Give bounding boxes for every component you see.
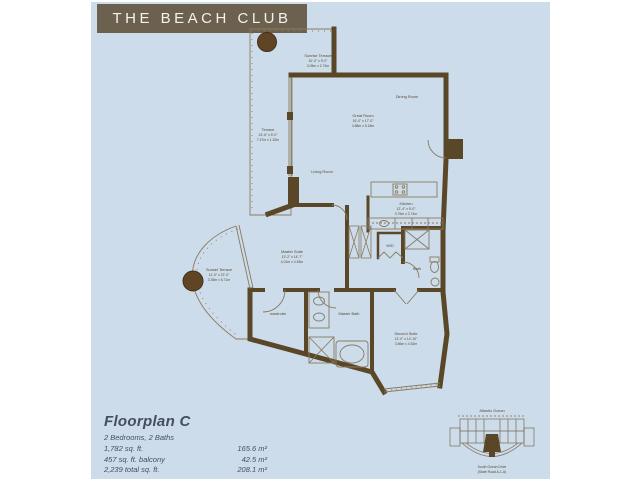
room-label: Master Bath [339,311,360,316]
kitchen-sink-icon [380,221,389,227]
room-label: Kitchen [400,201,413,206]
entry-door-arc [428,140,446,158]
room-label: wardrobe [270,311,286,316]
highlighted-unit-stem [489,452,495,457]
balcony-row: 457 sq. ft. balcony 42.5 m² [104,455,267,466]
sink-icon [314,297,325,305]
entry-wall-notch [446,139,463,159]
total-imperial: 2,239 total sq. ft. [104,465,159,476]
keyplan: Atlantic Ocean South Ocean Drive (State … [450,408,534,474]
toilet-icon [431,262,439,273]
area-imperial: 1,782 sq. ft. [104,444,143,455]
wall-stub [288,177,299,206]
room-dims: 11'-0" x 22'-0" [209,273,230,277]
wardrobe-door-arc [263,290,285,312]
room-dims: 12'-0" x 14'-10" [395,337,419,341]
area-metric: 165.6 m² [237,444,267,455]
sink-icon [314,313,325,321]
brochure-page: THE BEACH CLUB [0,0,640,480]
room-label: W/D [386,243,394,248]
room-dims: 24'-6" x 5'-0" [259,133,279,137]
closet-doors [349,226,359,258]
room-dims: 3.05m x 2.74m [307,64,330,68]
room-dims: 10'-0" x 9'-0" [309,59,329,63]
plan-name: Floorplan C [104,413,267,430]
balcony-imperial: 457 sq. ft. balcony [104,455,165,466]
terrace-table-icon [258,33,277,52]
bifold-door [378,252,403,258]
keyplan-road-label: South Ocean Drive [478,465,507,469]
room-label: Second Suite [394,331,417,336]
slider-window [239,225,253,288]
bath-fixtures [405,230,439,286]
master-suite-door-arc [332,205,347,220]
burner-icon [395,186,398,189]
shower-x [405,230,429,249]
room-label: Sunrise Terrace [304,53,331,58]
room-label: Bath [413,266,421,271]
total-row: 2,239 total sq. ft. 208.1 m² [104,465,267,476]
room-dims: 3.35m x 6.71m [208,278,231,282]
master-bath-door-arc [318,290,336,308]
window [384,386,440,392]
terrace-table-icon [183,271,203,291]
total-metric: 208.1 m² [237,465,267,476]
burner-icon [402,191,405,194]
room-dims: 12'-4" x 9'-0" [397,207,417,211]
room-label: Great Room [352,113,373,118]
room-dims: 4.01m x 4.45m [281,260,304,264]
room-dims: 13'-2" x 14'-7" [282,255,304,259]
closet-doors [361,226,371,258]
door-post [287,166,293,174]
room-label: Master Suite [281,249,303,254]
wall [268,205,293,214]
burner-icon [402,186,405,189]
floorplan-drawing: Sunrise Terrace 10'-0" x 9'-0" 3.05m x 2… [0,0,640,480]
slider-window [236,226,250,289]
room-dims: 16'-0" x 17'-0" [353,119,375,123]
french-doors [394,290,419,304]
keyplan-ocean-label: Atlantic Ocean [479,408,504,413]
sink-icon [431,278,439,286]
door-post [287,112,293,120]
area-row: 1,782 sq. ft. 165.6 m² [104,444,267,455]
room-label: Sunset Terrace [206,267,232,272]
window [384,383,440,389]
stove-icon [393,184,407,195]
building-wing [524,428,534,446]
room-dims: 3.66m x 4.52m [395,342,418,346]
room-dims: 7.47m x 1.52m [257,138,280,142]
plan-details: Floorplan C 2 Bedrooms, 2 Baths 1,782 sq… [104,413,267,476]
room-label: Terrace [262,127,275,132]
room-dims: 3.76m x 2.74m [395,212,418,216]
balcony-metric: 42.5 m² [242,455,267,466]
room-dims: 4.88m x 5.18m [352,124,375,128]
bathtub-basin [340,345,364,363]
keyplan-road-label2: (State Road A-1-A) [478,470,507,474]
bedrooms-baths: 2 Bedrooms, 2 Baths [104,433,267,442]
room-label: Dining Room [396,94,419,99]
burner-icon [395,191,398,194]
highlighted-unit-c [483,434,501,452]
building-wing [450,428,460,446]
room-label: Living Room [311,169,333,174]
